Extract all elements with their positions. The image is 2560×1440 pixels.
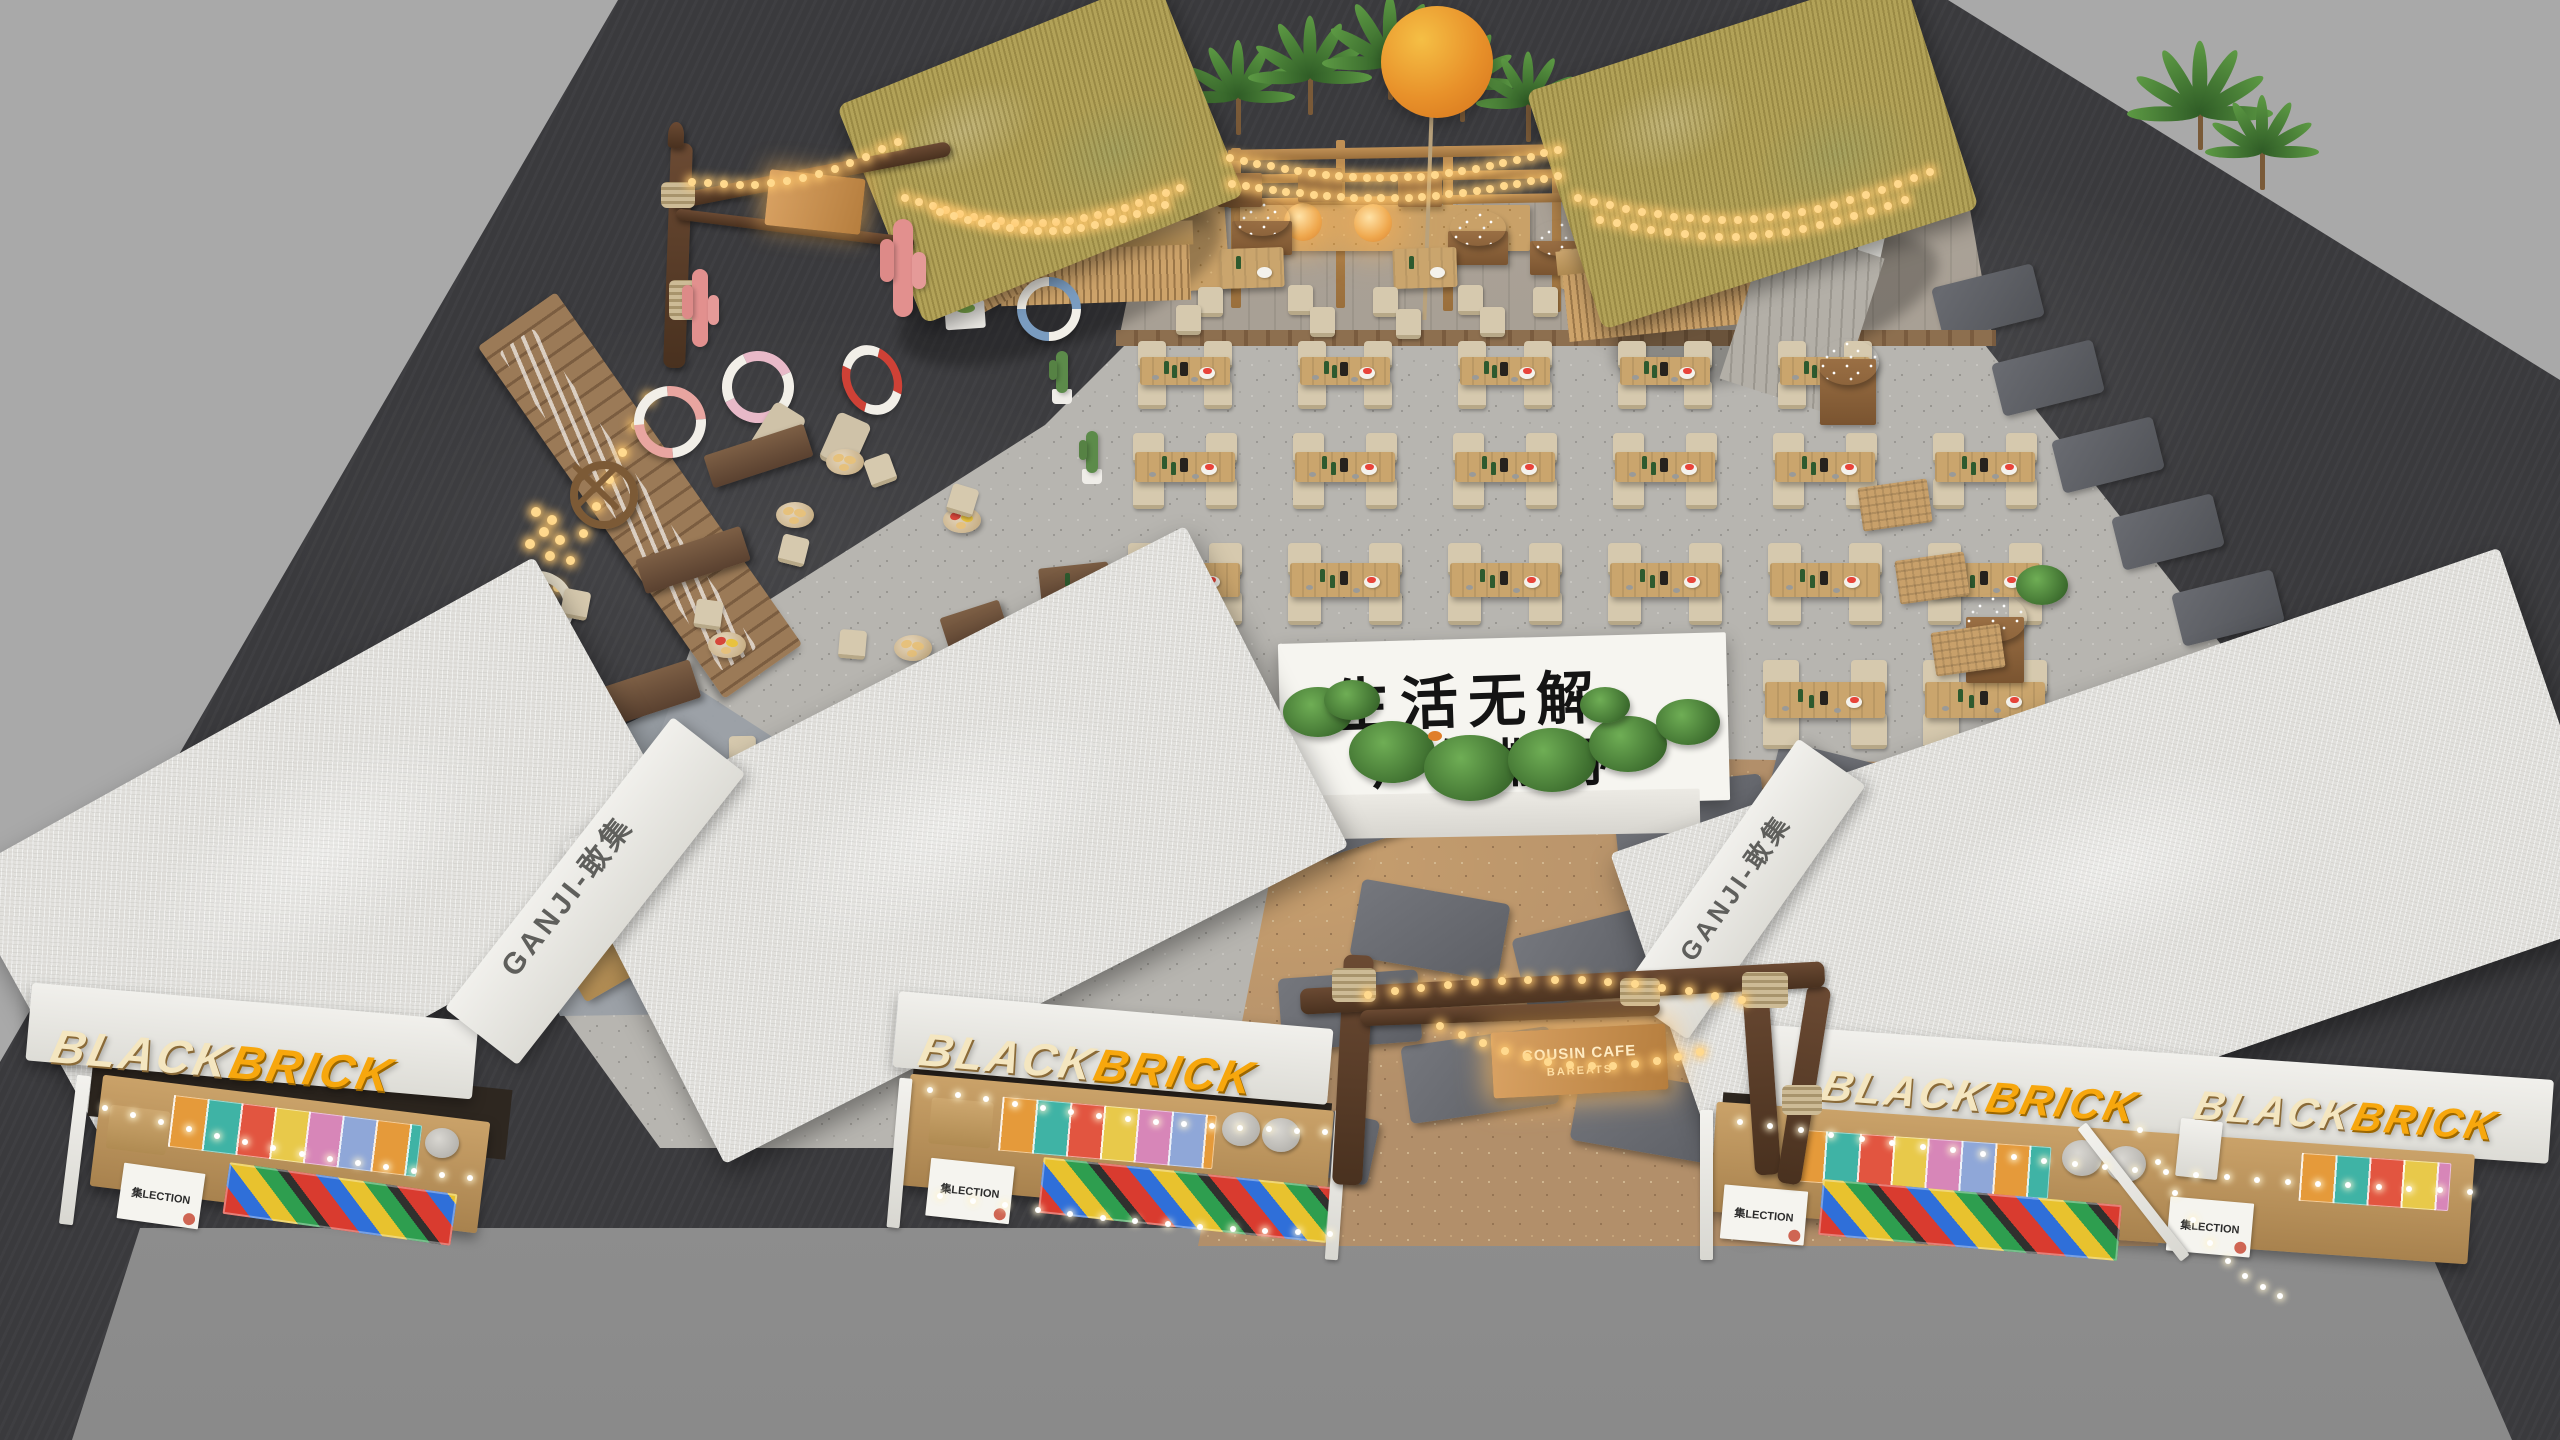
trellis-string-light [1308, 169, 1316, 177]
kiosk-light [2406, 1186, 2412, 1192]
trellis-string-light [1540, 175, 1548, 183]
table-lantern [1980, 571, 1988, 585]
hut-string-light [1867, 207, 1875, 215]
kiosk-light [1125, 1116, 1131, 1122]
slogan-plants [1656, 699, 1720, 745]
dining-chair [1773, 478, 1804, 509]
kiosk-light [2072, 1161, 2078, 1167]
table-cup [1832, 474, 1839, 479]
table-bottle [1484, 361, 1489, 374]
mast-string-light [1604, 978, 1612, 986]
watermelon-slice [2007, 577, 2016, 583]
table-bottle [1162, 456, 1167, 469]
table-lantern [1500, 362, 1508, 376]
mast-string-light [1653, 1057, 1661, 1065]
table-lantern [1820, 458, 1828, 472]
scene-canvas: 生活无解 户外撒野 BLACKBRICK 集LECTION GANJI-敢集 B… [0, 0, 2560, 1440]
bulb-cluster-light [525, 539, 535, 549]
watermelon-slice [1523, 368, 1532, 374]
trellis-string-light [1527, 153, 1535, 161]
trellis-string-light [1335, 172, 1343, 180]
table-bottle [1171, 462, 1176, 475]
kiosk-light [1859, 1136, 1865, 1142]
mast-string-light [1696, 1048, 1704, 1056]
arch-string-light [894, 138, 902, 146]
hut-string-light [1638, 208, 1646, 216]
table-bottle [1970, 575, 1975, 588]
arch-string-light [862, 153, 870, 161]
kiosk-middle-boxes [928, 1097, 994, 1148]
arch-string-light [751, 181, 759, 189]
deck-chair [1198, 287, 1223, 317]
kiosk-light [937, 1193, 943, 1199]
deck-table-bottle [1236, 256, 1241, 269]
hut-string-light [1606, 201, 1614, 209]
arch-hanging-sign [764, 169, 865, 235]
dining-chair [1138, 381, 1166, 409]
palm-plant [1234, 75, 1242, 135]
mast-string-light [1658, 984, 1666, 992]
kiosk-light [2254, 1177, 2260, 1183]
watermelon-slice [1845, 464, 1854, 470]
hut-string-light [1681, 230, 1689, 238]
kiosk-light [1230, 1226, 1236, 1232]
kiosk-light [2224, 1174, 2230, 1180]
watermelon-slice [1847, 577, 1856, 583]
hut-string-light [1034, 227, 1042, 235]
table-bottle [1810, 575, 1815, 588]
fence-bulb [579, 529, 588, 538]
kiosk-light [327, 1156, 333, 1162]
table-lantern [1340, 571, 1348, 585]
hut-string-light [1749, 232, 1757, 240]
dining-chair [1778, 381, 1806, 409]
kiosk-light [2011, 1154, 2017, 1160]
hut-string-light [1596, 216, 1604, 224]
hut-string-light [1901, 196, 1909, 204]
kiosk-light [383, 1164, 389, 1170]
kiosk-light [439, 1172, 445, 1178]
hut-string-light [1654, 210, 1662, 218]
table-lantern [1340, 362, 1348, 376]
deck-table-plate [1430, 267, 1445, 278]
slogan-plant-orange [1428, 731, 1442, 741]
table-bottle [1332, 365, 1337, 378]
mast-string-light [1417, 984, 1425, 992]
hut-string-light [1766, 213, 1774, 221]
kiosk-light [2242, 1273, 2248, 1279]
table-cup [1671, 377, 1678, 382]
hut-string-light [1910, 174, 1918, 182]
mast-string-light [1498, 977, 1506, 985]
trellis-string-light [1432, 192, 1440, 200]
trellis-string-light [1486, 185, 1494, 193]
trellis-string-light [1418, 193, 1426, 201]
kiosk-light [1035, 1207, 1041, 1213]
hut-string-light [1715, 233, 1723, 241]
table-cup [1632, 375, 1639, 380]
slogan-plants [1424, 735, 1516, 801]
table-cup [1994, 708, 2001, 713]
kiosk-left-tin-1 [425, 1128, 459, 1158]
kiosk-light [1980, 1151, 1986, 1157]
deck-table-bottle [1409, 256, 1414, 269]
table-bottle [1172, 365, 1177, 378]
table-bottle [1811, 462, 1816, 475]
table-cup [1351, 377, 1358, 382]
kiosk-light [1040, 1105, 1046, 1111]
kiosk-light [1153, 1119, 1159, 1125]
table-cup [1309, 472, 1316, 477]
kiosk-light [2041, 1158, 2047, 1164]
kiosk-light [242, 1139, 248, 1145]
kiosk-light [2285, 1179, 2291, 1185]
kiosk-light [1237, 1125, 1243, 1131]
pink-cactus [692, 269, 708, 347]
table-bottle [1331, 462, 1336, 475]
kiosk-light [1197, 1224, 1203, 1230]
hut-string-light [1782, 211, 1790, 219]
kiosk-light [2163, 1169, 2169, 1175]
glow-lamp [1354, 204, 1392, 242]
hut-string-light [1613, 219, 1621, 227]
kiosk-light [186, 1126, 192, 1132]
table-cup [1942, 706, 1949, 711]
trellis-string-light [1500, 182, 1508, 190]
trellis-string-light [1349, 173, 1357, 181]
table-cup [1786, 585, 1793, 590]
table-bottle [1491, 462, 1496, 475]
trellis-string-light [1294, 167, 1302, 175]
mast-string-light [1551, 976, 1559, 984]
kiosk-light [1002, 1202, 1008, 1208]
table-cup [1352, 474, 1359, 479]
dining-chair [1768, 592, 1802, 625]
dining-chair [1204, 381, 1232, 409]
hut-string-light [1765, 230, 1773, 238]
trellis-string-light [1473, 187, 1481, 195]
hut-string-light [1622, 205, 1630, 213]
watermelon-slice [2005, 464, 2014, 470]
trellis-string-light [1458, 167, 1466, 175]
table-lantern [1660, 571, 1668, 585]
kiosk-light [2137, 1127, 2143, 1133]
table-cup [1306, 585, 1313, 590]
kiosk-light [130, 1112, 136, 1118]
palm-leaf [1248, 71, 1310, 84]
table-cup [1626, 585, 1633, 590]
table-cup [1782, 706, 1789, 711]
slogan-plants [1324, 680, 1380, 720]
kiosk-light [1294, 1128, 1300, 1134]
poster-stamp [993, 1208, 1006, 1221]
palm-plant [2258, 130, 2266, 190]
green-cactus-arm [1049, 360, 1057, 380]
table-lantern [1980, 691, 1988, 705]
table-bottle [1650, 575, 1655, 588]
kiosk-light [1889, 1140, 1895, 1146]
table-cup [1672, 474, 1679, 479]
watermelon-slice [1527, 577, 1536, 583]
trellis-string-light [1323, 192, 1331, 200]
table-cup [1353, 588, 1360, 593]
deck-table [1392, 247, 1457, 289]
table-bottle [1642, 456, 1647, 469]
pink-cactus-arm [682, 285, 693, 319]
bulb-cluster-light [555, 535, 565, 545]
table-lantern [1500, 458, 1508, 472]
bread-loaf [789, 517, 799, 524]
kiosk-light [1262, 1228, 1268, 1234]
trellis-string-light [1445, 169, 1453, 177]
kiosk-light [2376, 1184, 2382, 1190]
entrance-sign-line-2: BAREATS [1547, 1063, 1614, 1078]
trellis-string-light [1337, 193, 1345, 201]
watermelon-slice [1850, 697, 1859, 703]
palm-plant [2196, 90, 2204, 150]
table-lantern [1500, 571, 1508, 585]
balloon [1381, 6, 1493, 118]
kiosk-light [970, 1198, 976, 1204]
mast-rope-3 [1742, 972, 1788, 1008]
mast-string-light [1588, 1062, 1596, 1070]
trellis-string-light [1282, 188, 1290, 196]
dining-chair [2006, 478, 2037, 509]
mast-string-light [1444, 981, 1452, 989]
bulb-cluster-light [531, 507, 541, 517]
table-bottle [1969, 695, 1974, 708]
trellis-string-light [1376, 174, 1384, 182]
watermelon-slice [1203, 368, 1212, 374]
slogan-plants [1349, 721, 1435, 783]
table-bottle [1480, 569, 1485, 582]
table-bottle [1640, 569, 1645, 582]
hut-string-light [1049, 227, 1057, 235]
hut-string-light [1833, 217, 1841, 225]
kiosk-light [2207, 1240, 2213, 1246]
hut-string-light [1107, 208, 1115, 216]
dining-chair [1613, 478, 1644, 509]
mast-rope-4 [1782, 1085, 1822, 1115]
trellis-string-light [1431, 171, 1439, 179]
kiosk-light [2277, 1293, 2283, 1299]
entrance-sign-line-1: COUSIN CAFE [1522, 1042, 1637, 1065]
palm-leaf [1322, 56, 1390, 70]
trellis-string-light [1296, 189, 1304, 197]
table-lantern [1180, 362, 1188, 376]
mast-string-light [1674, 1053, 1682, 1061]
arch-string-light [767, 179, 775, 187]
mast-string-light [1631, 1060, 1639, 1068]
hut-string-light [1816, 221, 1824, 229]
kiosk-light [158, 1119, 164, 1125]
watermelon-slice [1205, 464, 1214, 470]
hut-string-light [1734, 216, 1742, 224]
slogan-plants [1580, 687, 1630, 723]
kiosk-light [2102, 1164, 2108, 1170]
slogan-planter-base [1308, 789, 1701, 840]
green-cactus-arm [1079, 440, 1087, 460]
trellis-string-light [1242, 182, 1250, 190]
arch-pole-finial [668, 122, 685, 149]
deck-table-plate [1257, 267, 1272, 278]
poster-text: 集LECTION [131, 1184, 192, 1208]
planter-bush [1817, 339, 1879, 385]
hut-string-light [1066, 217, 1074, 225]
hut-string-light [1080, 214, 1088, 222]
trellis-string-light [1554, 146, 1562, 154]
bulb-cluster-light [539, 527, 549, 537]
table-lantern [1180, 458, 1188, 472]
mast-string-light [1501, 1047, 1509, 1055]
hut-string-light [1119, 215, 1127, 223]
table-cup [1992, 474, 1999, 479]
kiosk-light [467, 1175, 473, 1181]
kiosk-light [2132, 1167, 2138, 1173]
kiosk-light [1132, 1218, 1138, 1224]
mast-string-light [1436, 1022, 1444, 1030]
hut-string-light [1161, 201, 1169, 209]
arch-string-light [720, 180, 728, 188]
hut-string-light [1846, 196, 1854, 204]
table-bottle [1809, 695, 1814, 708]
kiosk-light [1327, 1231, 1333, 1237]
dining-chair [1686, 478, 1717, 509]
kiosk-light [2193, 1172, 2199, 1178]
table-cup [1149, 472, 1156, 477]
table-cup [1629, 472, 1636, 477]
table-lantern [1660, 458, 1668, 472]
pink-cactus-arm [912, 252, 926, 290]
table-bottle [1962, 456, 1967, 469]
dining-chair [1849, 592, 1883, 625]
palm-trunk [1308, 75, 1313, 115]
table-cup [1469, 472, 1476, 477]
watermelon-slice [1683, 368, 1692, 374]
hut-string-light [1814, 205, 1822, 213]
dining-chair [1364, 381, 1392, 409]
watermelon-slice [1363, 368, 1372, 374]
deck-chair [1176, 305, 1201, 335]
poster-text: 集LECTION [1734, 1204, 1794, 1225]
mast-string-light [1523, 1053, 1531, 1061]
palm-leaf [2262, 146, 2319, 158]
table-lantern [1980, 458, 1988, 472]
hut-string-light [1878, 186, 1886, 194]
hut-string-light [901, 194, 909, 202]
trellis-string-light [1240, 157, 1248, 165]
dining-chair [1608, 592, 1642, 625]
poster-stamp [182, 1212, 196, 1226]
kiosk-right-poster-1: 集LECTION [1720, 1184, 1808, 1245]
hut-string-light [1105, 218, 1113, 226]
watermelon-slice [2010, 697, 2019, 703]
fence-bulb [618, 448, 627, 457]
trellis-string-light [1554, 172, 1562, 180]
kiosk-light [2437, 1187, 2443, 1193]
hut-string-light [1830, 201, 1838, 209]
hut-string-light [950, 212, 958, 220]
dining-chair [1526, 478, 1557, 509]
hut-string-light [1063, 226, 1071, 234]
hut-string-light [964, 216, 972, 224]
hut-string-light [1094, 211, 1102, 219]
kiosk-light [1920, 1144, 1926, 1150]
slogan-plants [1508, 728, 1596, 791]
deck-chair [1396, 309, 1421, 339]
kiosk-light [2345, 1182, 2351, 1188]
hut-string-light [1732, 233, 1740, 241]
kiosk-light [2225, 1258, 2231, 1264]
hut-string-light [1133, 210, 1141, 218]
dining-chair [1851, 713, 1888, 749]
trellis-string-light [1363, 174, 1371, 182]
poster-stamp [2234, 1241, 2247, 1254]
kiosk-light [2260, 1284, 2266, 1290]
palm-leaf [2127, 106, 2200, 121]
dining-chair [1529, 592, 1563, 625]
kiosk-light [2467, 1189, 2473, 1195]
kiosk-light [1209, 1123, 1215, 1129]
kiosk-light [1096, 1113, 1102, 1119]
trellis-string-light [1281, 165, 1289, 173]
table-bottle [1164, 361, 1169, 374]
pink-cactus-arm [880, 239, 894, 282]
table-lantern [1820, 691, 1828, 705]
table-bottle [1320, 569, 1325, 582]
table-cup [1513, 588, 1520, 593]
hut-string-light [1894, 180, 1902, 188]
table-cup [1511, 377, 1518, 382]
bread-loaf [956, 522, 966, 529]
mast-string-light [1578, 976, 1586, 984]
watermelon-slice [1367, 577, 1376, 583]
trellis-string-light [1255, 184, 1263, 192]
hut-string-light [1630, 223, 1638, 231]
table-cup [1949, 472, 1956, 477]
kiosk-light [2155, 1159, 2161, 1165]
kiosk-light [1295, 1229, 1301, 1235]
mast-string-light [1544, 1058, 1552, 1066]
table-bottle [1482, 456, 1487, 469]
table-bottle [1644, 361, 1649, 374]
trellis-string-light [1350, 194, 1358, 202]
kiosk-light [1798, 1127, 1804, 1133]
kiosk-middle-poster: 集LECTION [925, 1158, 1015, 1224]
hut-string-light [1135, 199, 1143, 207]
table-bottle [1958, 689, 1963, 702]
camp-chair [837, 628, 866, 659]
kiosk-light [270, 1145, 276, 1151]
table-bottle [1800, 569, 1805, 582]
palm-trunk [2260, 150, 2265, 190]
table-bottle [1324, 361, 1329, 374]
kiosk-light [983, 1096, 989, 1102]
pink-cactus-arm [708, 295, 719, 325]
trellis-string-light [1364, 194, 1372, 202]
mast-string-light [1711, 992, 1719, 1000]
hut-string-light [929, 202, 937, 210]
kiosk-light [102, 1105, 108, 1111]
table-cup [1472, 375, 1479, 380]
camp-chair [693, 598, 724, 630]
kiosk-right-leg-1 [1700, 1110, 1713, 1260]
green-cactus [1056, 351, 1068, 393]
arch-string-light [815, 170, 823, 178]
trellis-string-light [1540, 149, 1548, 157]
trellis-string-light [1322, 171, 1330, 179]
hut-string-light [1162, 189, 1170, 197]
